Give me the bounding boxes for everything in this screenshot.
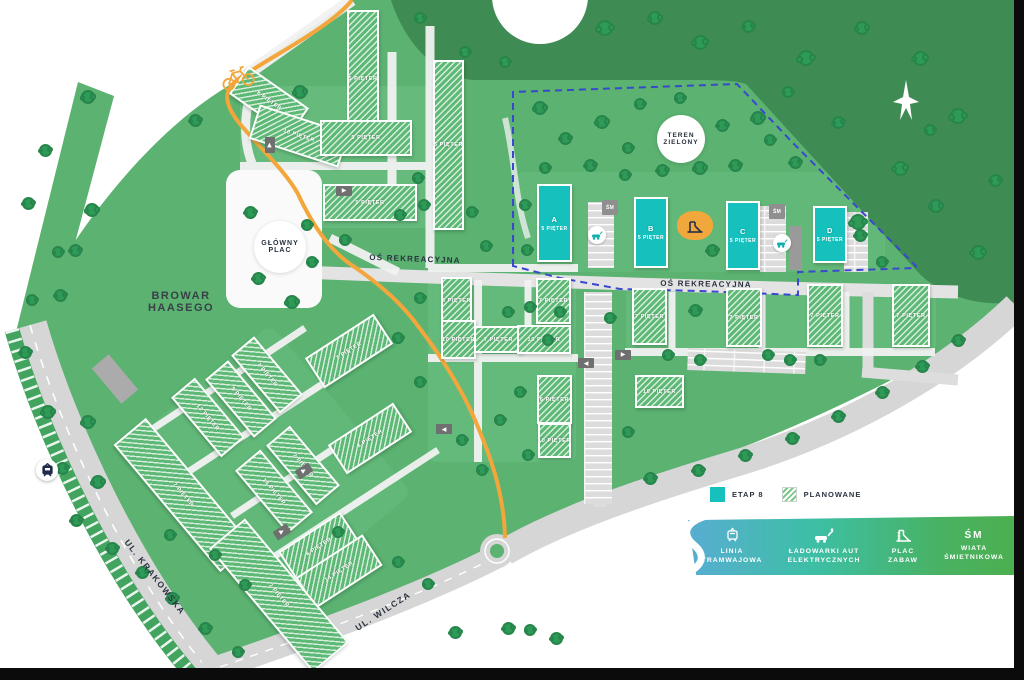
tree-icon bbox=[301, 219, 313, 231]
tree-icon bbox=[622, 426, 634, 438]
planned-building: 7 PIĘTER bbox=[726, 288, 762, 347]
planned-building: 8 PIĘTER bbox=[441, 277, 472, 324]
tree-icon bbox=[916, 360, 929, 373]
tree-icon bbox=[232, 646, 244, 658]
tree-icon bbox=[656, 164, 669, 177]
building-floors-label: 5 PIĘTER bbox=[434, 142, 463, 148]
legend-item-playground: PLAC ZABAW bbox=[872, 526, 934, 565]
tree-icon bbox=[418, 199, 430, 211]
tree-icon bbox=[422, 578, 434, 590]
tree-icon bbox=[449, 626, 462, 639]
tree-icon bbox=[91, 475, 105, 489]
tree-icon bbox=[54, 289, 67, 302]
playground-area bbox=[677, 211, 713, 240]
tree-icon bbox=[694, 354, 706, 366]
planned-building: 5 PIĘTER bbox=[433, 60, 464, 230]
tree-icon bbox=[521, 244, 533, 256]
building-floors-label: 8 PIĘTER bbox=[442, 298, 471, 304]
building-floors-label: 14 PIĘTER bbox=[261, 477, 287, 506]
building-floors-label: 7 PIĘTER bbox=[810, 313, 839, 319]
planowane-swatch bbox=[782, 487, 797, 502]
etap8-building-c: C5 PIĘTER bbox=[726, 201, 760, 270]
legend-item-ev: ŁADOWARKI AUT ELEKTRYCZNYCH bbox=[776, 526, 872, 565]
tree-icon bbox=[285, 295, 299, 309]
building-letter: B bbox=[648, 224, 654, 233]
tree-icon bbox=[524, 624, 536, 636]
building-floors-label: 7 PIĘTER bbox=[335, 341, 363, 362]
right-black-bar bbox=[1014, 0, 1024, 680]
tree-icon bbox=[542, 334, 554, 346]
building-floors-label: 12 PIĘTER bbox=[195, 403, 221, 432]
site-plan-map: 5 PIĘTER8 PIĘTER10 PIĘTER5 PIĘTER5 PIĘTE… bbox=[0, 0, 1024, 680]
tree-icon bbox=[693, 161, 707, 175]
tree-icon bbox=[854, 229, 867, 242]
tree-icon bbox=[494, 414, 506, 426]
planned-building: 7 PIĘTER bbox=[807, 284, 843, 347]
tree-icon bbox=[164, 529, 176, 541]
legend-s-curve bbox=[674, 513, 710, 584]
tree-icon bbox=[392, 556, 404, 568]
tree-icon bbox=[924, 124, 936, 136]
building-floors-label: 8 PIĘTER bbox=[356, 428, 384, 449]
waste-shelter-box: ŚM bbox=[602, 200, 618, 215]
sm-text: ŚM bbox=[606, 205, 614, 211]
tree-icon bbox=[412, 172, 424, 184]
entrance-arrow-marker: ▶ bbox=[336, 186, 352, 196]
building-floors-label: 7 PIĘTER bbox=[896, 313, 925, 319]
legend-text: ŁADOWARKI AUT bbox=[789, 547, 860, 556]
tree-icon bbox=[519, 199, 531, 211]
tree-icon bbox=[674, 92, 686, 104]
etap8-building-b: B5 PIĘTER bbox=[634, 197, 668, 268]
building-floors-label: 7 PIĘTER bbox=[484, 337, 513, 343]
glowny-plac-line1: GŁÓWNY bbox=[261, 240, 299, 247]
tree-icon bbox=[293, 85, 307, 99]
tree-icon bbox=[244, 206, 257, 219]
planned-building: 5 PIĘTER bbox=[320, 120, 412, 156]
planned-building: 7 PIĘTER bbox=[892, 284, 930, 347]
waste-shelter-box: ŚM bbox=[769, 204, 785, 219]
planned-building: 7 PIĘTER bbox=[536, 278, 571, 324]
tree-icon bbox=[19, 346, 32, 359]
tree-icon bbox=[832, 410, 845, 423]
legend-text: LINIA bbox=[721, 547, 744, 556]
tree-icon bbox=[789, 156, 802, 169]
tram-stop-icon bbox=[36, 459, 58, 481]
tree-icon bbox=[81, 90, 95, 104]
building-floors-label: 6 PIĘTER bbox=[540, 397, 569, 403]
tree-icon bbox=[850, 214, 866, 230]
roundabout bbox=[480, 534, 514, 568]
tree-icon bbox=[414, 292, 426, 304]
tree-icon bbox=[619, 169, 631, 181]
tree-icon bbox=[689, 304, 702, 317]
tree-icon bbox=[855, 21, 869, 35]
planned-building: 7 PIĘTER bbox=[474, 326, 523, 353]
tree-icon bbox=[644, 472, 657, 485]
building-floors-label: 7 PIĘTER bbox=[635, 314, 664, 320]
tree-icon bbox=[392, 332, 404, 344]
tree-icon bbox=[762, 349, 774, 361]
tree-icon bbox=[913, 51, 928, 66]
tree-icon bbox=[876, 386, 889, 399]
tree-icon bbox=[692, 464, 705, 477]
compass-north-icon bbox=[893, 80, 919, 133]
tree-icon bbox=[764, 134, 776, 146]
tree-icon bbox=[524, 301, 536, 313]
glowny-plac-line2: PLAC bbox=[268, 247, 291, 254]
tree-icon bbox=[456, 434, 468, 446]
tree-icon bbox=[106, 542, 119, 555]
planned-building: 6 PIĘTER bbox=[537, 375, 572, 424]
entrance-arrow-marker: ▶ bbox=[578, 358, 594, 368]
ev-charger-icon bbox=[814, 526, 834, 543]
tree-icon bbox=[414, 376, 426, 388]
glowny-plac-circle: GŁÓWNY PLAC bbox=[254, 221, 306, 273]
building-floors-label: 14 PIĘTER bbox=[324, 560, 355, 583]
tree-icon bbox=[252, 272, 265, 285]
tree-icon bbox=[239, 579, 251, 591]
tree-icon bbox=[751, 111, 765, 125]
sm-text: ŚM bbox=[773, 209, 781, 215]
tree-icon bbox=[622, 142, 634, 154]
entrance-arrow-marker: ▶ bbox=[615, 350, 631, 360]
tree-icon bbox=[394, 209, 406, 221]
tree-icon bbox=[814, 354, 826, 366]
building-floors-label: 10 PIĘTER bbox=[643, 389, 676, 395]
tree-icon bbox=[739, 449, 752, 462]
tree-icon bbox=[950, 108, 966, 124]
tree-icon bbox=[693, 35, 708, 50]
teren-zielony-line2: ZIELONY bbox=[663, 139, 698, 146]
tree-icon bbox=[306, 256, 318, 268]
legend-text: ŚMIETNIKOWA bbox=[944, 553, 1004, 562]
tree-icon bbox=[716, 119, 729, 132]
ev-charger-map-icon bbox=[773, 234, 791, 252]
tree-icon bbox=[550, 632, 563, 645]
building-floors-label: 5 PIĘTER bbox=[351, 135, 380, 141]
tree-icon bbox=[786, 432, 799, 445]
legend-bar: LINIA TRAMWAJOWA ŁADOWARKI AUT ELEKTRYCZ… bbox=[688, 516, 1014, 575]
building-floors-label: 8 PIĘTER bbox=[229, 386, 252, 412]
slide-icon bbox=[686, 218, 704, 234]
building-letter: C bbox=[740, 227, 746, 236]
building-floors-label: 7 PIĘTER bbox=[267, 582, 290, 608]
tree-icon bbox=[952, 334, 965, 347]
sm-text-icon: ŚM bbox=[965, 530, 984, 541]
tree-icon bbox=[22, 197, 35, 210]
tree-icon bbox=[85, 203, 99, 217]
tree-icon bbox=[81, 415, 95, 429]
building-floors-label: 7 PIĘTER bbox=[255, 362, 278, 388]
tree-icon bbox=[539, 162, 551, 174]
tree-icon bbox=[339, 234, 351, 246]
building-floors-label: 8 PIĘTER bbox=[305, 537, 333, 558]
tree-icon bbox=[39, 144, 52, 157]
browar-line2: HAASEGO bbox=[148, 302, 214, 314]
tram-icon bbox=[725, 526, 740, 543]
tree-icon bbox=[70, 514, 83, 527]
tree-icon bbox=[989, 174, 1002, 187]
ev-charger-map-icon bbox=[588, 226, 606, 244]
building-floors-label: 5 PIĘTER bbox=[638, 235, 664, 241]
etap8-swatch bbox=[710, 487, 725, 502]
legend-item-waste-shelter: ŚM WIATA ŚMIETNIKOWA bbox=[934, 530, 1014, 562]
street-label-os-rekreacyjna-east: OŚ REKREACYJNA bbox=[660, 279, 752, 290]
tree-icon bbox=[459, 46, 471, 58]
tree-icon bbox=[893, 161, 908, 176]
tree-icon bbox=[584, 159, 597, 172]
legend-swatches: ETAP 8 PLANOWANE bbox=[710, 487, 861, 502]
tree-icon bbox=[597, 20, 613, 36]
tree-icon bbox=[209, 549, 221, 561]
tree-icon bbox=[742, 20, 755, 33]
tree-icon bbox=[929, 199, 943, 213]
teren-zielony-line1: TEREN bbox=[667, 132, 694, 139]
building-floors-label: 7 PIĘTER bbox=[171, 482, 194, 508]
planned-building: 10 PIĘTER bbox=[538, 423, 571, 458]
tree-icon bbox=[971, 245, 986, 260]
tree-icon bbox=[604, 312, 616, 324]
building-floors-label: 7 PIĘTER bbox=[539, 298, 568, 304]
building-letter: A bbox=[552, 215, 558, 224]
planowane-label: PLANOWANE bbox=[804, 490, 862, 499]
tree-icon bbox=[876, 256, 888, 268]
building-floors-label: 10 PIĘTER bbox=[442, 337, 475, 343]
legend-text: TRAMWAJOWA bbox=[702, 556, 763, 565]
building-floors-label: 5 PIĘTER bbox=[541, 226, 567, 232]
tree-icon bbox=[476, 464, 488, 476]
building-letter: D bbox=[827, 226, 833, 235]
legend-text: PLAC bbox=[892, 547, 915, 556]
building-floors-label: 5 PIĘTER bbox=[730, 238, 756, 244]
tree-icon bbox=[554, 306, 566, 318]
tree-icon bbox=[41, 405, 55, 419]
tree-icon bbox=[69, 244, 82, 257]
building-floors-label: 10 PIĘTER bbox=[538, 438, 571, 444]
building-floors-label: 5 PIĘTER bbox=[817, 237, 843, 243]
tree-icon bbox=[729, 159, 742, 172]
etap8-label: ETAP 8 bbox=[732, 490, 764, 499]
tree-icon bbox=[199, 622, 212, 635]
tree-icon bbox=[502, 306, 514, 318]
legend-text: WIATA bbox=[961, 544, 987, 553]
teren-zielony-circle: TEREN ZIELONY bbox=[657, 115, 705, 163]
tree-icon bbox=[26, 294, 38, 306]
etap8-building-d: D5 PIĘTER bbox=[813, 206, 847, 263]
tree-icon bbox=[782, 86, 794, 98]
tree-icon bbox=[522, 449, 534, 461]
entrance-arrow-marker: ▶ bbox=[436, 424, 452, 434]
tree-icon bbox=[332, 526, 344, 538]
tree-icon bbox=[502, 622, 515, 635]
slide-icon bbox=[895, 526, 912, 543]
tree-icon bbox=[480, 240, 492, 252]
tree-icon bbox=[798, 50, 814, 66]
tree-icon bbox=[706, 244, 719, 257]
planned-building: 10 PIĘTER bbox=[635, 375, 684, 408]
tree-icon bbox=[662, 349, 674, 361]
legend-text: ELEKTRYCZNYCH bbox=[788, 556, 861, 565]
planned-building: 10 PIĘTER bbox=[441, 320, 476, 359]
tree-icon bbox=[559, 132, 572, 145]
tree-icon bbox=[634, 98, 646, 110]
tree-icon bbox=[533, 101, 547, 115]
entrance-arrow-marker: ▶ bbox=[265, 137, 275, 153]
tree-icon bbox=[189, 114, 202, 127]
bottom-black-bar bbox=[0, 668, 1024, 680]
browar-haasego-label: BROWAR HAASEGO bbox=[121, 290, 241, 314]
tree-icon bbox=[648, 11, 662, 25]
tree-icon bbox=[514, 386, 526, 398]
building-floors-label: 7 PIĘTER bbox=[729, 315, 758, 321]
legend-text: ZABAW bbox=[888, 556, 918, 565]
tree-icon bbox=[784, 354, 796, 366]
tree-icon bbox=[52, 246, 64, 258]
browar-line1: BROWAR bbox=[151, 290, 210, 302]
tree-icon bbox=[499, 56, 511, 68]
building-floors-label: 5 PIĘTER bbox=[355, 200, 384, 206]
building-floors-label: 10 PIĘTER bbox=[282, 128, 315, 144]
planned-building: 7 PIĘTER bbox=[632, 288, 667, 345]
tree-icon bbox=[466, 206, 478, 218]
tree-icon bbox=[414, 12, 426, 24]
building-floors-label: 5 PIĘTER bbox=[348, 76, 377, 82]
tree-icon bbox=[832, 116, 845, 129]
etap8-building-a: A5 PIĘTER bbox=[537, 184, 572, 262]
tree-icon bbox=[595, 115, 609, 129]
